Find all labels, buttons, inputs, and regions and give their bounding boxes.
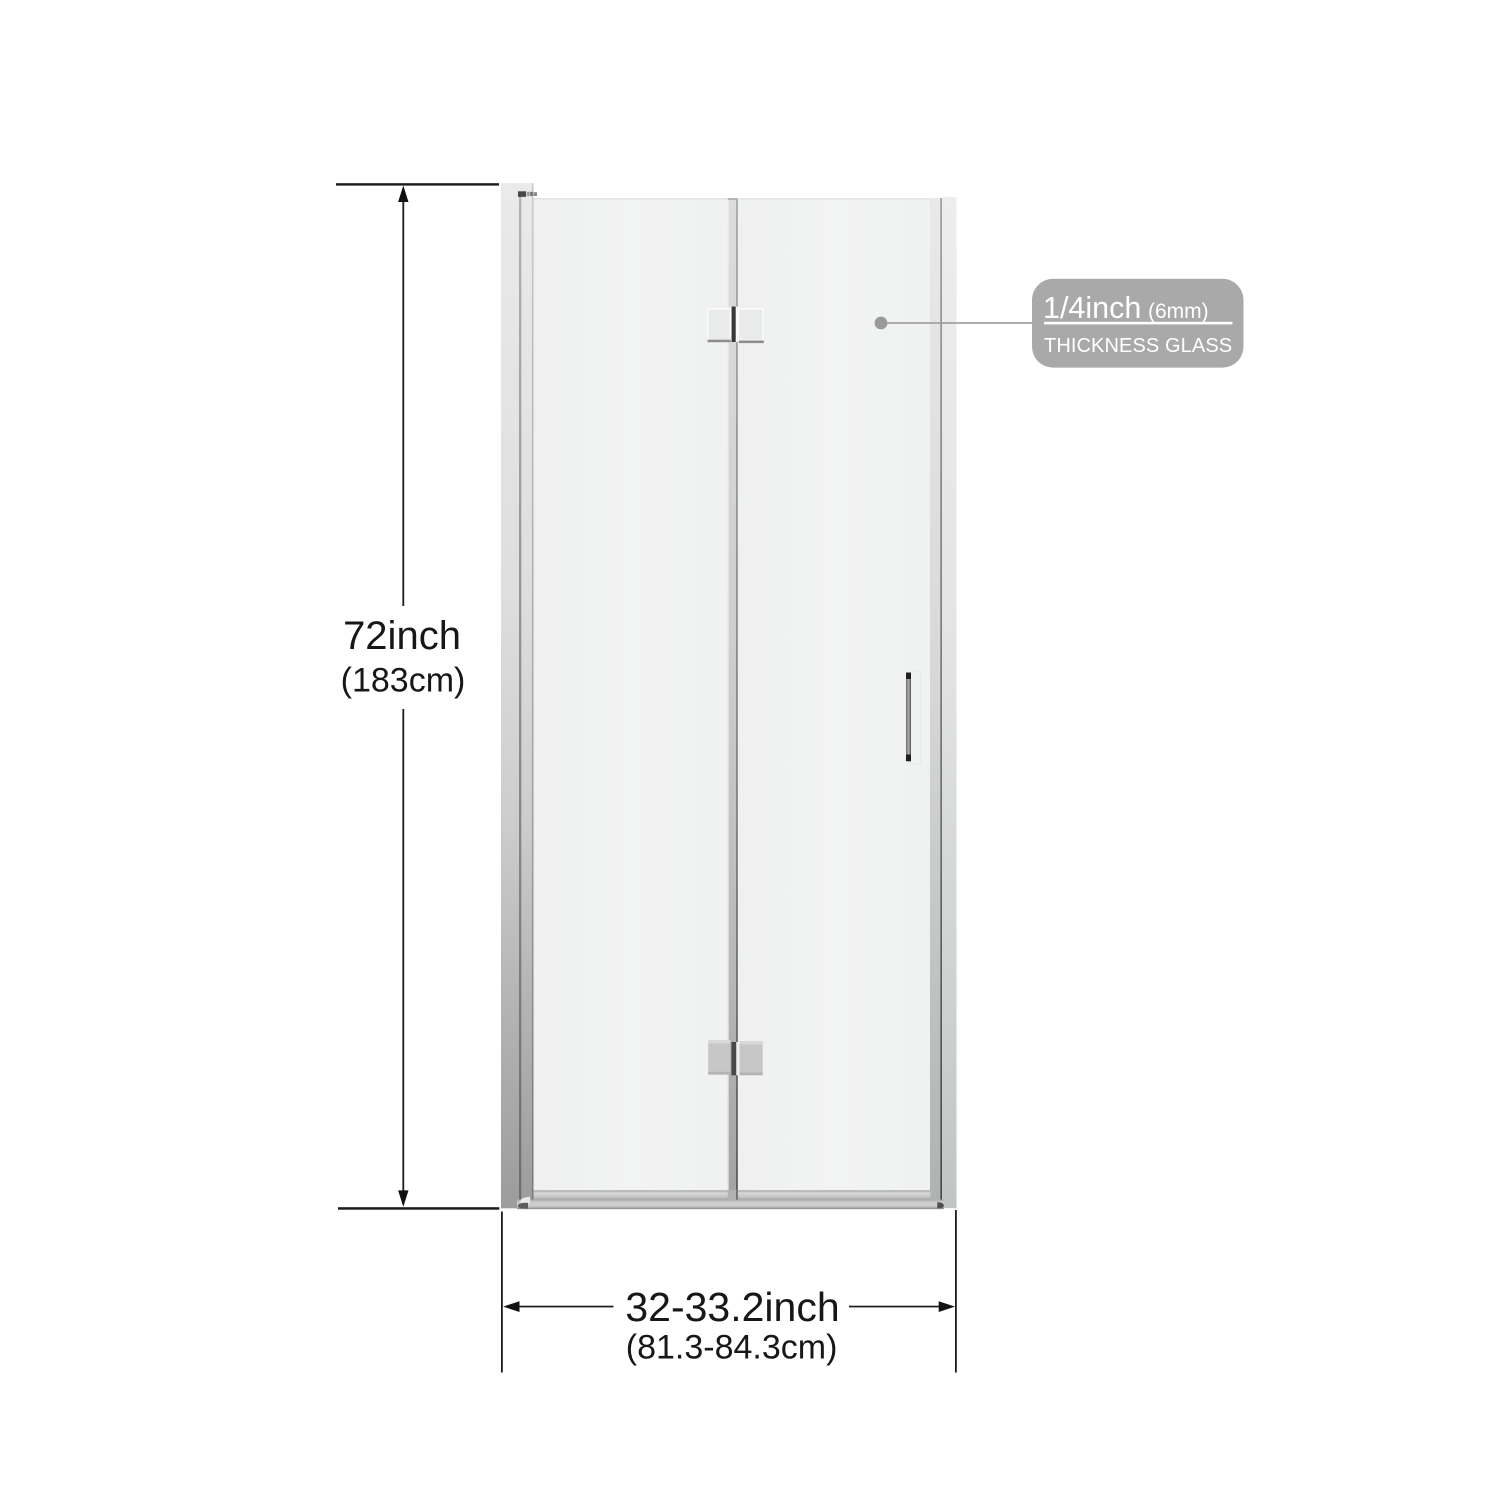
svg-text:(183cm): (183cm) — [341, 661, 466, 699]
svg-text:THICKNESS GLASS: THICKNESS GLASS — [1044, 335, 1232, 357]
svg-text:1/4inch: 1/4inch — [1043, 291, 1141, 325]
svg-text:32-33.2inch: 32-33.2inch — [625, 1284, 839, 1330]
svg-text:72inch: 72inch — [343, 614, 461, 658]
svg-text:(6mm): (6mm) — [1148, 300, 1209, 323]
svg-text:(81.3-84.3cm): (81.3-84.3cm) — [626, 1329, 838, 1367]
